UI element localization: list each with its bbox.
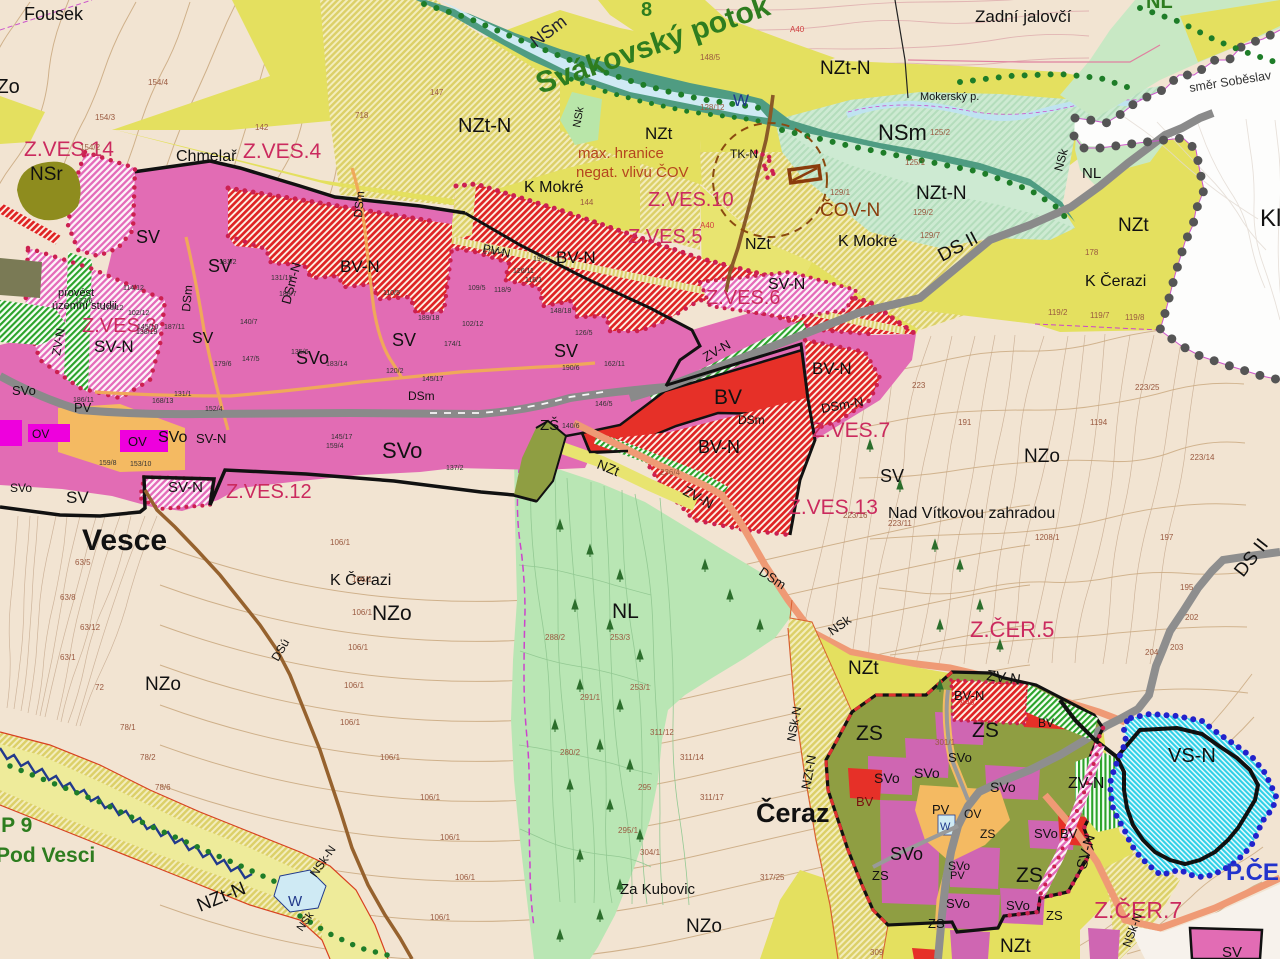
svg-text:ZS: ZS [972,719,999,742]
svg-text:Z.VES.6: Z.VES.6 [706,287,780,309]
svg-text:PV: PV [932,802,950,817]
svg-text:NZo: NZo [372,602,412,625]
svg-text:SV: SV [554,341,578,361]
svg-text:63/1: 63/1 [60,653,76,662]
svg-text:72: 72 [95,683,104,692]
svg-text:A46: A46 [960,698,975,707]
svg-text:Z.ČER.5: Z.ČER.5 [970,617,1054,642]
svg-text:NZo: NZo [0,76,20,98]
svg-text:DSm: DSm [738,413,765,427]
svg-text:NZt-N: NZt-N [916,183,967,204]
svg-text:110/5: 110/5 [383,290,400,297]
svg-text:120/2: 120/2 [386,368,404,375]
svg-text:P.ČER: P.ČER [1226,858,1280,886]
svg-text:Z.VES.10: Z.VES.10 [648,189,734,211]
svg-text:BV-N: BV-N [812,359,852,378]
svg-text:BV: BV [714,386,742,409]
svg-text:63/12: 63/12 [80,623,101,632]
svg-text:154/4: 154/4 [148,78,169,87]
svg-text:NL: NL [612,600,639,623]
svg-text:311/17: 311/17 [700,793,724,802]
svg-text:78/2: 78/2 [140,753,156,762]
svg-text:178: 178 [1085,248,1099,257]
svg-text:NZo: NZo [686,916,722,937]
svg-text:162/11: 162/11 [604,361,625,368]
svg-text:SV: SV [192,330,214,347]
svg-text:106/1: 106/1 [352,608,373,617]
svg-text:BV: BV [856,794,874,809]
svg-text:SV: SV [66,488,89,507]
svg-text:BV-N: BV-N [556,248,596,267]
svg-text:NZt: NZt [745,236,771,253]
svg-text:119/8: 119/8 [1125,313,1145,322]
svg-text:ZS: ZS [980,827,995,841]
svg-text:Zadní jalovčí: Zadní jalovčí [975,7,1072,26]
svg-text:NSr: NSr [30,164,63,185]
svg-text:125/2: 125/2 [930,128,951,137]
svg-text:148/18: 148/18 [550,308,572,315]
svg-text:106/1: 106/1 [330,538,351,547]
svg-text:197: 197 [1160,533,1174,542]
svg-text:170/14: 170/14 [483,249,505,256]
svg-text:147/5: 147/5 [242,356,260,363]
svg-text:317/25: 317/25 [760,873,785,882]
svg-text:63/8: 63/8 [60,593,76,602]
svg-text:125/1: 125/1 [905,158,926,167]
svg-text:309: 309 [870,948,884,957]
svg-text:Mokerský p.: Mokerský p. [920,91,979,103]
svg-text:109/5: 109/5 [468,285,486,292]
svg-text:174/1: 174/1 [444,341,462,348]
svg-text:ZŠ: ZŠ [540,417,559,434]
svg-text:142: 142 [255,123,269,132]
svg-text:SVo: SVo [1034,826,1058,841]
svg-text:SV-N: SV-N [168,479,203,496]
svg-text:106/1: 106/1 [348,643,369,652]
svg-text:SV-N: SV-N [196,431,226,446]
svg-text:106/1: 106/1 [380,753,401,762]
svg-text:NZo: NZo [145,674,181,695]
svg-text:190/6: 190/6 [533,256,551,263]
svg-text:114/12: 114/12 [123,285,144,292]
svg-text:OV: OV [964,807,981,821]
svg-text:BV-N: BV-N [340,257,380,276]
svg-text:106/1: 106/1 [344,681,365,690]
svg-text:129/2: 129/2 [913,208,934,217]
svg-text:135/6: 135/6 [291,349,309,356]
svg-text:131/1: 131/1 [174,391,192,398]
svg-text:203: 203 [1170,643,1184,652]
svg-text:ZS: ZS [872,868,889,883]
svg-text:SVo: SVo [12,383,36,398]
svg-text:NZt-N: NZt-N [820,58,871,79]
svg-text:129/1: 129/1 [830,188,851,197]
svg-text:188/7: 188/7 [279,291,297,298]
svg-text:OV: OV [128,434,147,449]
svg-text:1208/1: 1208/1 [1035,533,1060,542]
svg-text:8: 8 [641,0,652,21]
svg-text:106/1: 106/1 [420,793,441,802]
svg-text:183/14: 183/14 [326,361,348,368]
svg-text:Chmelař: Chmelař [176,148,237,165]
svg-text:OV: OV [32,427,49,441]
svg-text:SVo: SVo [382,438,422,463]
svg-text:DSm: DSm [351,190,367,218]
svg-text:159/4: 159/4 [326,443,344,450]
svg-text:295: 295 [638,783,652,792]
svg-text:304/1: 304/1 [640,848,661,857]
svg-text:ZS: ZS [1046,908,1063,923]
svg-text:SV: SV [392,330,416,350]
svg-text:116/1: 116/1 [525,277,542,284]
svg-text:SVo: SVo [10,481,32,495]
svg-text:BV: BV [1060,826,1078,841]
svg-text:K Mokré: K Mokré [838,233,898,250]
svg-text:147: 147 [430,88,444,97]
svg-text:Fousek: Fousek [24,4,84,24]
svg-text:137/2: 137/2 [446,465,464,472]
svg-text:Z.VES.7: Z.VES.7 [812,419,890,442]
svg-text:ČOV-N: ČOV-N [820,199,880,221]
svg-text:126/11: 126/11 [513,268,534,275]
svg-text:106/1: 106/1 [352,575,373,584]
svg-text:291/1: 291/1 [580,693,601,702]
svg-text:SV: SV [136,227,160,247]
svg-text:223/16: 223/16 [843,511,868,520]
svg-text:ZS: ZS [856,722,883,745]
svg-text:119/2: 119/2 [1048,308,1068,317]
svg-text:131/15: 131/15 [271,275,293,282]
svg-text:SV: SV [1222,944,1242,959]
svg-text:NSm: NSm [878,120,927,145]
svg-text:144: 144 [580,198,594,207]
svg-text:SVo: SVo [158,429,187,446]
svg-text:SVo: SVo [990,779,1016,795]
svg-text:63/5: 63/5 [75,558,91,567]
svg-text:78/1: 78/1 [120,723,136,732]
svg-text:127/6: 127/6 [75,298,93,305]
svg-text:NP 9: NP 9 [0,814,32,837]
svg-text:Z.VES.4: Z.VES.4 [243,140,322,163]
svg-text:181/2: 181/2 [219,259,237,266]
svg-text:119/7: 119/7 [1090,311,1110,320]
svg-text:SVo: SVo [890,844,923,864]
svg-text:SVo: SVo [874,770,900,786]
svg-text:126/5: 126/5 [575,330,593,337]
svg-text:288/2: 288/2 [545,633,566,642]
svg-text:106/1: 106/1 [455,873,476,882]
svg-text:W: W [733,91,749,110]
svg-text:NL: NL [1146,0,1173,13]
svg-text:SVo: SVo [948,750,972,765]
svg-text:TK-N: TK-N [730,147,758,161]
svg-text:145/17: 145/17 [331,434,353,441]
svg-text:140/7: 140/7 [240,319,258,326]
svg-text:Z.VES.14: Z.VES.14 [24,138,114,161]
svg-text:Za Kubovic: Za Kubovic [620,881,696,898]
svg-text:128/12: 128/12 [700,103,725,112]
svg-text:max. hranice: max. hranice [578,145,664,162]
svg-text:154/3: 154/3 [95,113,116,122]
svg-text:NZt: NZt [1118,215,1149,236]
svg-text:106/1: 106/1 [440,833,461,842]
svg-text:78/6: 78/6 [155,783,171,792]
svg-text:ZS: ZS [1016,864,1043,887]
svg-text:DSm: DSm [179,284,195,312]
svg-text:ZV-N: ZV-N [1068,775,1104,792]
svg-text:253/3: 253/3 [610,633,631,642]
svg-text:223: 223 [912,381,926,390]
svg-text:K Mokré: K Mokré [524,179,584,196]
svg-text:186/11: 186/11 [73,397,94,404]
svg-text:154/2: 154/2 [80,143,101,152]
svg-text:253/1: 253/1 [630,683,651,692]
svg-text:negat. vlivu ČOV: negat. vlivu ČOV [576,164,689,181]
svg-text:195: 195 [1180,583,1194,592]
svg-text:191: 191 [958,418,972,427]
svg-text:176/12: 176/12 [102,305,124,312]
svg-text:118/9: 118/9 [494,287,511,294]
svg-text:145/10: 145/10 [137,324,159,331]
svg-text:106/1: 106/1 [340,718,361,727]
svg-text:K Čerazi: K Čerazi [1085,271,1146,290]
svg-text:102/12: 102/12 [128,310,150,317]
svg-text:NZt: NZt [645,124,673,143]
svg-text:Z.VES.12: Z.VES.12 [226,481,312,503]
svg-text:187/11: 187/11 [164,324,185,331]
svg-text:W: W [940,821,951,833]
svg-text:145/17: 145/17 [422,376,444,383]
svg-text:Kl: Kl [1260,205,1280,232]
svg-text:106/1: 106/1 [430,913,451,922]
svg-text:202: 202 [1185,613,1199,622]
svg-text:168/13: 168/13 [152,398,174,405]
svg-text:148/5: 148/5 [700,53,721,62]
svg-text:SV-N: SV-N [94,337,134,356]
svg-text:NL: NL [1082,165,1101,182]
svg-text:179/6: 179/6 [214,361,232,368]
svg-text:ZS: ZS [928,916,945,931]
svg-text:190/6: 190/6 [562,365,580,372]
svg-text:NZo: NZo [1024,446,1060,467]
svg-text:SVo: SVo [914,765,940,781]
svg-text:280/2: 280/2 [560,748,581,757]
svg-text:PV: PV [950,870,965,882]
svg-text:223/11: 223/11 [888,519,912,528]
svg-text:189/18: 189/18 [418,315,440,322]
svg-text:718: 718 [355,111,369,120]
svg-text:159/8: 159/8 [99,460,117,467]
svg-text:223/14: 223/14 [1190,453,1215,462]
svg-text:NZt-N: NZt-N [458,115,511,137]
svg-text:311/12: 311/12 [650,728,674,737]
svg-text:A40: A40 [790,25,805,34]
svg-text:Čeraz: Čeraz [756,797,830,828]
svg-text:1194: 1194 [1090,418,1108,427]
svg-text:Vesce: Vesce [82,524,167,557]
svg-text:152/4: 152/4 [205,406,223,413]
svg-text:VS-N: VS-N [1168,745,1216,767]
svg-text:146/5: 146/5 [595,401,613,408]
svg-text:Z.VES.5: Z.VES.5 [628,226,702,248]
svg-text:SVo: SVo [946,896,970,911]
svg-text:204: 204 [1145,648,1159,657]
svg-text:SVo: SVo [1006,898,1030,913]
svg-text:129/7: 129/7 [920,231,941,240]
svg-text:BV-N: BV-N [698,437,740,457]
svg-text:153/10: 153/10 [130,461,152,468]
svg-text:NZt: NZt [1000,936,1031,957]
svg-text:102/12: 102/12 [462,321,484,328]
svg-text:223/25: 223/25 [1135,383,1160,392]
svg-text:295/1: 295/1 [618,826,639,835]
svg-text:236/4: 236/4 [660,468,681,477]
svg-text:W: W [288,893,303,910]
svg-text:BV: BV [1038,716,1054,730]
svg-text:Pod Vesci: Pod Vesci [0,844,95,867]
svg-text:Nad Vítkovou zahradou: Nad Vítkovou zahradou [888,505,1055,522]
svg-text:NZt: NZt [848,658,879,679]
svg-text:DSm: DSm [408,389,435,403]
svg-text:311/14: 311/14 [680,753,704,762]
svg-text:140/6: 140/6 [562,423,580,430]
svg-text:A40: A40 [700,221,715,230]
svg-text:301/1: 301/1 [935,738,956,747]
